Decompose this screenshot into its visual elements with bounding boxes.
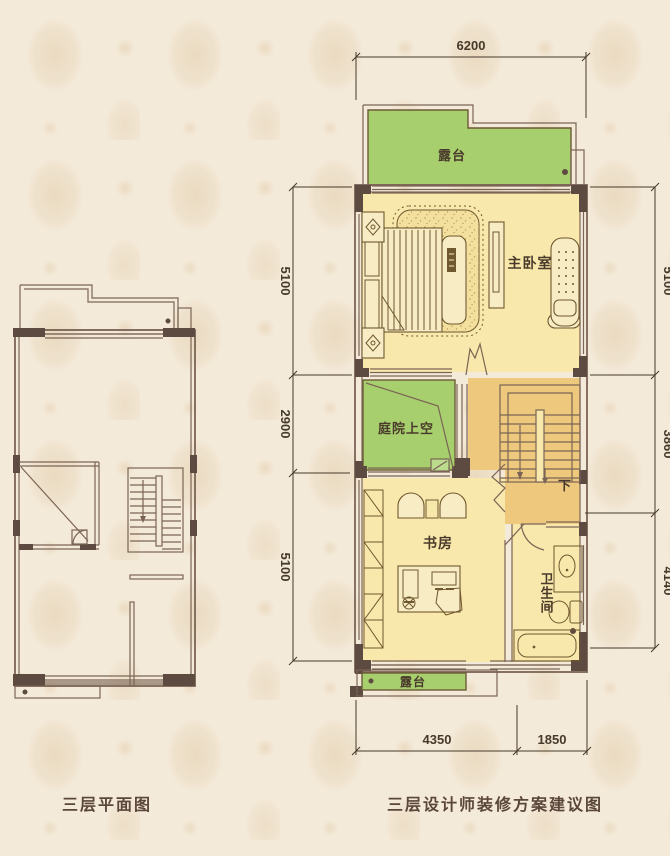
dim-label-bottom-right: 1850 [538, 732, 567, 747]
terrace-outline-left-plan [20, 285, 191, 330]
left-plan-caption: 三层平面图 [62, 796, 152, 814]
dim-label-bottom-left: 4350 [423, 732, 452, 747]
nightstand-top [362, 212, 384, 242]
floorplan-page: 露台 主卧室 庭院上空 书房 卫生间 下 露台 6200 5100 2900 5… [0, 0, 670, 856]
windows-left-plan [45, 330, 163, 684]
dim-label-left-mid: 2900 [278, 410, 293, 439]
floor-drain [570, 628, 576, 634]
bottom-terrace-left-plan [15, 686, 100, 698]
stairs-left-plan [128, 468, 183, 552]
dimension-bottom: 4350 1850 [352, 680, 591, 755]
bathroom-label: 卫生间 [539, 572, 554, 614]
dim-label-left-bottom: 5100 [278, 553, 293, 582]
study-label: 书房 [423, 535, 453, 551]
right-floorplan: 露台 主卧室 庭院上空 书房 卫生间 下 露台 [350, 105, 587, 697]
courtyard-room-left-plan [19, 462, 99, 550]
dim-label-right-mid: 3860 [661, 430, 670, 459]
desk-group [398, 566, 462, 615]
plan-outline-left [15, 330, 195, 686]
dim-label-left-top: 5100 [278, 267, 293, 296]
interior-walls-left-plan [130, 575, 183, 686]
chaise-lounge [548, 238, 580, 328]
dimension-top: 6200 [352, 38, 590, 118]
terrace-bottom [357, 670, 497, 696]
tv-cabinet [489, 222, 504, 308]
dim-label-top-width: 6200 [457, 38, 486, 53]
dim-label-right-bottom: 4140 [661, 567, 670, 596]
terrace-top-label: 露台 [438, 148, 466, 163]
terrace-drain-dot [562, 169, 568, 175]
right-plan-caption: 三层设计师装修方案建议图 [387, 795, 603, 814]
dimension-left: 5100 2900 5100 [278, 183, 352, 665]
terrace-top-floor [368, 110, 571, 185]
terrace-bottom-label: 露台 [400, 674, 426, 689]
stair-down-label: 下 [558, 478, 572, 493]
terrace-side-wall [571, 150, 584, 185]
floorplan-drawing: 露台 主卧室 庭院上空 书房 卫生间 下 露台 6200 5100 2900 5… [0, 0, 670, 856]
nightstand-bottom [362, 328, 384, 358]
master-bedroom-label: 主卧室 [508, 255, 553, 271]
left-floorplan [13, 285, 197, 698]
dim-label-right-top: 5100 [661, 267, 670, 296]
dimension-right: 5100 3860 4140 [585, 183, 670, 652]
courtyard-label: 庭院上空 [378, 421, 434, 436]
